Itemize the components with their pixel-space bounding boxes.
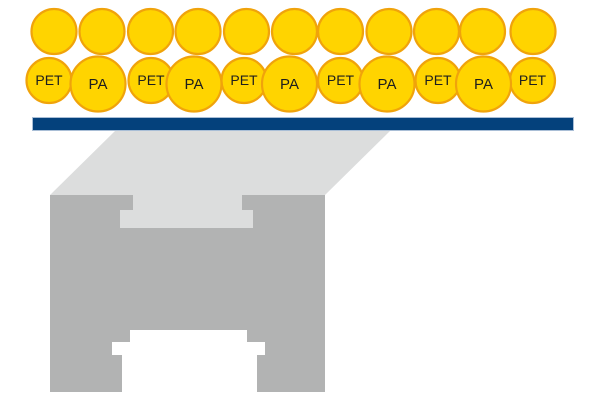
particle-top-circle: [460, 9, 505, 54]
pet-pa-layer-diagram: PETPETPETPETPETPET PAPAPAPAPA: [0, 0, 600, 400]
particle-top-circle: [272, 9, 317, 54]
particle-top-circle: [128, 9, 173, 54]
particle-pet-label: PET: [424, 72, 452, 88]
particle-pet-label: PET: [230, 72, 258, 88]
particle-top-circle: [80, 9, 125, 54]
sample-stage: [50, 131, 390, 392]
particle-top-circle: [318, 9, 363, 54]
stage-bottom-cutout: [112, 330, 265, 392]
particle-pa-label: PA: [185, 76, 204, 93]
particle-top-circle: [367, 9, 412, 54]
diagram-canvas: PETPETPETPETPETPET PAPAPAPAPA: [0, 0, 600, 400]
particle-pet-label: PET: [35, 72, 63, 88]
substrate-bar: [33, 118, 574, 131]
particles-top-row: [32, 9, 556, 54]
particle-pet-label: PET: [327, 72, 355, 88]
stage-top-face: [50, 131, 390, 195]
particle-pa-label: PA: [280, 76, 299, 93]
particle-top-circle: [511, 9, 556, 54]
particle-top-circle: [176, 9, 221, 54]
particle-top-circle: [32, 9, 77, 54]
particle-pa-label: PA: [474, 76, 493, 93]
particle-top-circle: [224, 9, 269, 54]
particle-pet-label: PET: [519, 72, 547, 88]
stage-top-notch: [120, 195, 253, 228]
particle-pa-label: PA: [89, 76, 108, 93]
particle-top-circle: [414, 9, 459, 54]
particle-pa-label: PA: [378, 76, 397, 93]
particle-pet-label: PET: [137, 72, 165, 88]
substrate-bar-group: [33, 118, 574, 131]
